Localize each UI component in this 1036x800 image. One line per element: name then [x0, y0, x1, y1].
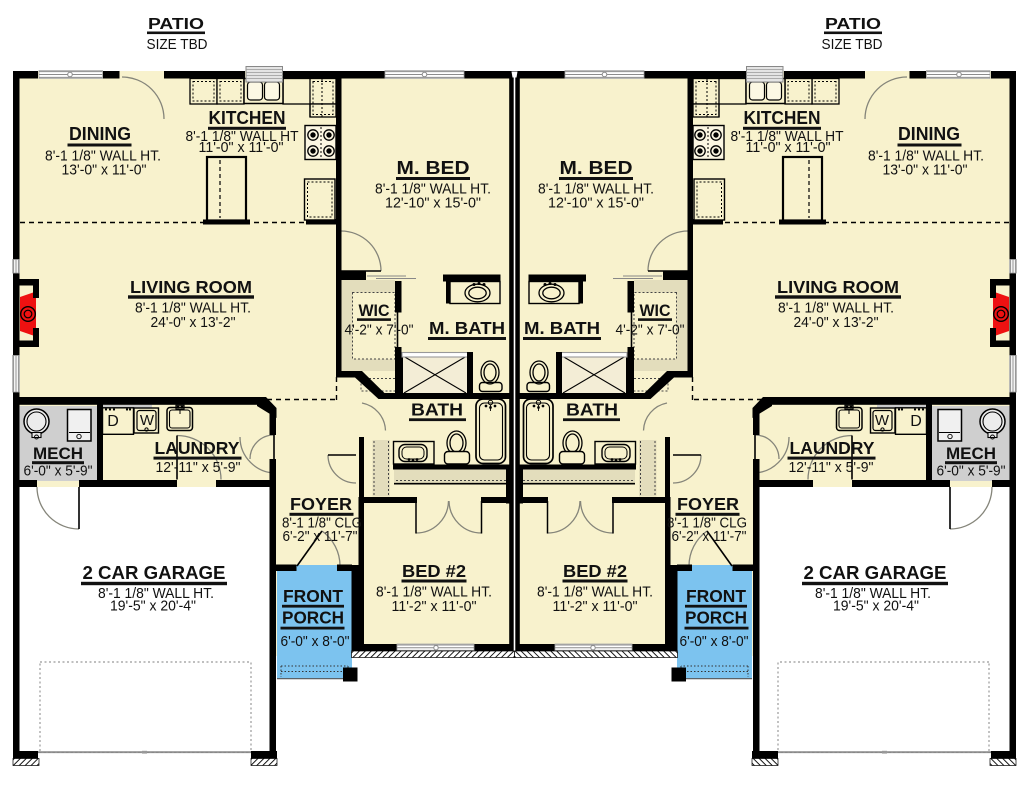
svg-text:BED #2: BED #2: [563, 561, 627, 581]
svg-text:11'-0" x 11'-0": 11'-0" x 11'-0": [199, 139, 284, 156]
svg-text:6'-0" x 8'-0": 6'-0" x 8'-0": [281, 633, 350, 650]
svg-text:SIZE TBD: SIZE TBD: [147, 36, 208, 53]
svg-text:FOYER: FOYER: [290, 494, 352, 514]
svg-text:2 CAR GARAGE: 2 CAR GARAGE: [83, 563, 226, 583]
svg-text:LIVING ROOM: LIVING ROOM: [777, 277, 899, 297]
svg-text:D: D: [107, 413, 119, 430]
svg-text:11'-2" x 11'-0": 11'-2" x 11'-0": [392, 598, 477, 615]
svg-text:MECH: MECH: [946, 444, 996, 463]
svg-text:BED #2: BED #2: [402, 561, 466, 581]
svg-text:FOYER: FOYER: [677, 494, 739, 514]
svg-text:PATIO: PATIO: [148, 16, 204, 33]
svg-text:24'-0" x 13'-2": 24'-0" x 13'-2": [794, 314, 879, 331]
svg-text:13'-0" x 11'-0": 13'-0" x 11'-0": [883, 162, 968, 179]
svg-text:6'-0" x 5'-9": 6'-0" x 5'-9": [937, 463, 1006, 480]
svg-text:BATH: BATH: [411, 400, 463, 420]
svg-text:LAUNDRY: LAUNDRY: [790, 438, 875, 458]
svg-text:M. BED: M. BED: [560, 158, 633, 178]
svg-text:DINING: DINING: [898, 124, 960, 144]
svg-text:24'-0" x 13'-2": 24'-0" x 13'-2": [151, 314, 236, 331]
svg-text:M. BATH: M. BATH: [524, 318, 600, 338]
svg-text:KITCHEN: KITCHEN: [744, 108, 821, 128]
svg-text:PORCH: PORCH: [685, 608, 747, 628]
svg-text:2 CAR GARAGE: 2 CAR GARAGE: [804, 563, 947, 583]
svg-text:MECH: MECH: [33, 444, 83, 463]
svg-text:6'-0" x 5'-9": 6'-0" x 5'-9": [24, 463, 93, 480]
svg-text:13'-0" x 11'-0": 13'-0" x 11'-0": [62, 162, 147, 179]
svg-text:BATH: BATH: [566, 400, 618, 420]
svg-text:12'-11" x 5'-9": 12'-11" x 5'-9": [156, 459, 241, 476]
svg-text:6'-2" x 11'-7": 6'-2" x 11'-7": [283, 528, 358, 545]
svg-text:D: D: [910, 413, 922, 430]
svg-text:LIVING ROOM: LIVING ROOM: [130, 277, 252, 297]
svg-text:WIC: WIC: [640, 301, 671, 320]
svg-text:KITCHEN: KITCHEN: [209, 108, 286, 128]
svg-text:11'-0" x 11'-0": 11'-0" x 11'-0": [746, 139, 831, 156]
svg-text:12'-10" x 15'-0": 12'-10" x 15'-0": [548, 195, 644, 212]
svg-text:FRONT: FRONT: [686, 586, 746, 606]
svg-text:19'-5" x 20'-4": 19'-5" x 20'-4": [833, 598, 919, 615]
svg-text:6'-0" x 8'-0": 6'-0" x 8'-0": [680, 633, 749, 650]
svg-text:PORCH: PORCH: [282, 608, 344, 628]
svg-text:4'-2" x 7'-0": 4'-2" x 7'-0": [616, 322, 685, 339]
svg-text:12'-10" x 15'-0": 12'-10" x 15'-0": [385, 195, 481, 212]
svg-text:DINING: DINING: [69, 124, 131, 144]
svg-text:19'-5" x 20'-4": 19'-5" x 20'-4": [110, 598, 196, 615]
svg-text:LAUNDRY: LAUNDRY: [155, 438, 240, 458]
svg-text:W: W: [875, 412, 890, 429]
svg-text:WIC: WIC: [359, 301, 390, 320]
svg-text:W: W: [140, 412, 155, 429]
svg-text:11'-2" x 11'-0": 11'-2" x 11'-0": [553, 598, 638, 615]
svg-text:12'-11" x 5'-9": 12'-11" x 5'-9": [789, 459, 874, 476]
svg-text:PATIO: PATIO: [825, 16, 881, 33]
svg-text:SIZE TBD: SIZE TBD: [822, 36, 883, 53]
svg-text:M. BED: M. BED: [397, 158, 470, 178]
svg-text:FRONT: FRONT: [283, 586, 343, 606]
svg-text:6'-2" x 11'-7": 6'-2" x 11'-7": [672, 528, 747, 545]
svg-text:M. BATH: M. BATH: [429, 318, 505, 338]
svg-text:4'-2" x 7'-0": 4'-2" x 7'-0": [345, 322, 414, 339]
